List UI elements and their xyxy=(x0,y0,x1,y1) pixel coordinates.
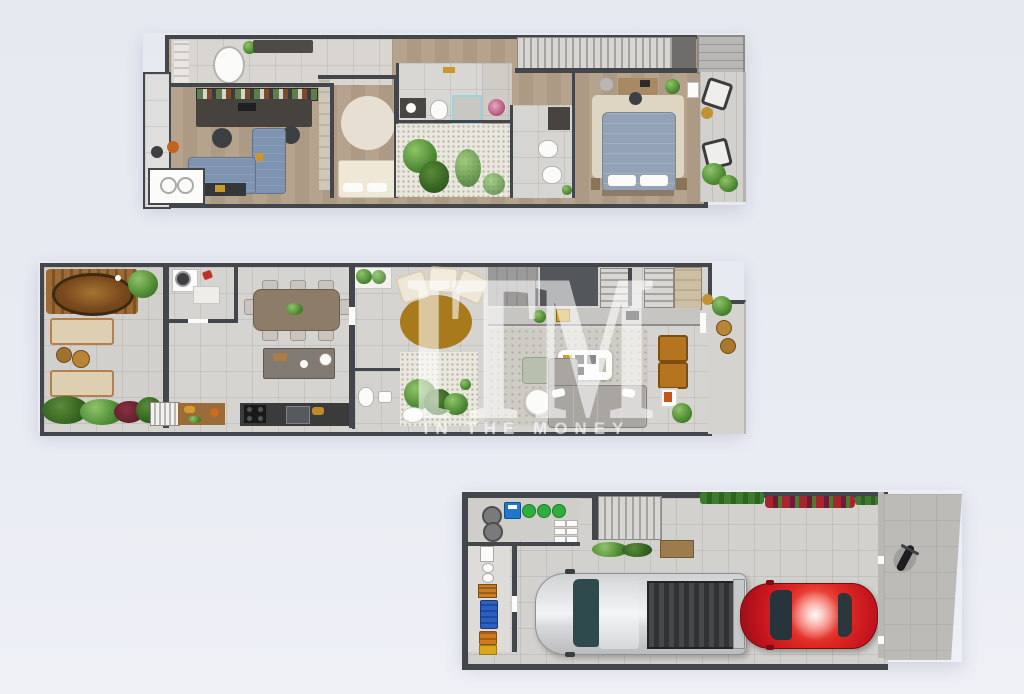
stair-closet xyxy=(674,267,702,310)
master-bench xyxy=(687,82,699,98)
porch-wood-stool xyxy=(716,320,732,336)
car-mirror xyxy=(766,645,774,650)
wall xyxy=(330,85,334,198)
main-floor-plan xyxy=(38,261,744,432)
stairs-flight xyxy=(644,268,674,308)
blue-cooler xyxy=(504,502,521,519)
powder-sink xyxy=(378,391,392,403)
car-rear-window xyxy=(838,593,852,637)
sectional-sofa-vertical xyxy=(252,128,286,194)
sofa-pillow xyxy=(255,153,263,161)
toilet xyxy=(358,387,374,407)
dryer-top xyxy=(177,177,194,194)
desk-laptop xyxy=(640,80,650,87)
laundry-tub xyxy=(482,563,494,573)
courtyard-plant xyxy=(444,393,468,415)
tv-console-decor xyxy=(215,185,225,192)
bed-pillow xyxy=(640,175,668,186)
bed-pillow xyxy=(367,183,387,192)
floor-plan-canvas: ITM IN THE MONEY xyxy=(0,0,1024,694)
top-hedge xyxy=(855,496,879,505)
door-post xyxy=(878,556,884,564)
stairs-flight xyxy=(600,268,630,308)
green-bin xyxy=(552,504,566,518)
laundry-washer xyxy=(175,271,191,287)
deck-side-table xyxy=(72,350,90,368)
car-roof-glare xyxy=(792,589,838,641)
flower-bed xyxy=(765,496,855,508)
pickup-truck xyxy=(535,573,745,653)
laundry-table xyxy=(193,286,220,304)
cooler-lid xyxy=(508,505,517,509)
utility-barrel xyxy=(483,522,503,542)
gold-pots xyxy=(312,407,324,415)
flower-pot-pink xyxy=(488,99,505,116)
courtyard-gold-rug xyxy=(400,295,472,349)
sun-lounger xyxy=(50,318,114,345)
garage-stairs xyxy=(598,496,662,540)
balcony-table xyxy=(701,107,713,119)
nightstand xyxy=(591,178,600,190)
stove xyxy=(244,405,266,423)
garden-plant xyxy=(419,161,449,193)
top-hedge xyxy=(700,492,764,504)
utility-sink xyxy=(480,546,494,562)
armchair-caramel xyxy=(658,335,688,362)
balcony-plant xyxy=(719,175,738,192)
island-board xyxy=(273,353,287,361)
toilet xyxy=(430,100,448,120)
console-art xyxy=(599,358,606,372)
planter-greens xyxy=(356,269,372,284)
garage-level-plan xyxy=(462,490,962,662)
garden-fern xyxy=(455,149,481,187)
bbq-bowls xyxy=(184,406,195,413)
truck-bed xyxy=(647,581,735,649)
bbq-grill xyxy=(150,402,180,426)
console-art xyxy=(587,355,596,364)
island-sink xyxy=(319,353,332,366)
deck-plant xyxy=(128,270,158,298)
island-stool xyxy=(300,360,308,368)
bbq-pot xyxy=(210,408,219,417)
bath-sink xyxy=(406,103,416,113)
master-stool xyxy=(600,78,613,91)
yellow-box xyxy=(479,645,497,655)
sun-lounger xyxy=(50,370,114,397)
laundry-door xyxy=(188,319,208,323)
porch-wood-stool xyxy=(720,338,736,354)
roof-box xyxy=(697,35,745,74)
laundry-tub xyxy=(482,573,494,583)
wall xyxy=(396,120,512,123)
living-plant xyxy=(672,403,692,423)
bedroom2-wardrobe xyxy=(319,77,330,190)
wall xyxy=(169,83,334,87)
truck-mirror xyxy=(565,569,575,574)
shelf-box xyxy=(566,520,578,527)
porch-plant xyxy=(712,296,732,316)
wall xyxy=(510,105,513,198)
bathtub xyxy=(213,46,245,84)
car-windshield xyxy=(770,590,792,640)
wall xyxy=(515,68,700,73)
bedroom2-bed xyxy=(338,160,396,198)
shelf-box xyxy=(554,520,566,527)
upper-stairs xyxy=(517,37,674,70)
stair-void-panel xyxy=(488,267,538,306)
planter-greens xyxy=(372,270,386,284)
wall xyxy=(234,267,238,322)
entry-door xyxy=(700,313,706,333)
bed-pillow xyxy=(608,175,636,186)
truck-roof xyxy=(599,577,639,649)
door-post xyxy=(878,636,884,644)
bed-headboard xyxy=(602,190,674,196)
dark-pouf xyxy=(151,146,163,158)
blue-crates xyxy=(480,600,498,629)
sofa-chaise xyxy=(548,358,578,387)
courtyard-pot xyxy=(460,379,471,390)
hot-tub xyxy=(52,273,134,316)
driveway xyxy=(884,494,962,660)
garden-planter-tub xyxy=(402,407,424,423)
red-car xyxy=(740,583,876,647)
stair-hedge xyxy=(622,543,652,557)
bed-pillow xyxy=(343,183,363,192)
wall xyxy=(396,63,399,123)
wall xyxy=(572,73,575,198)
desk-chair xyxy=(629,92,642,105)
master-plant xyxy=(665,79,680,94)
stairs-landing xyxy=(672,37,696,68)
deck-side-table xyxy=(56,347,72,363)
wood-shelf xyxy=(478,584,497,598)
table-centerpiece xyxy=(286,303,303,315)
stair-void xyxy=(540,267,598,306)
truck-windshield xyxy=(573,579,599,647)
bath2-plant xyxy=(562,185,572,195)
desk-monitor xyxy=(238,103,256,111)
hall-door xyxy=(349,307,355,325)
bath2-console xyxy=(548,107,570,130)
kitchen-sink xyxy=(286,406,310,424)
garage-door-edge xyxy=(878,492,884,658)
shelf-gold-box xyxy=(556,309,570,322)
truck-mirror xyxy=(565,652,575,657)
towels xyxy=(443,67,455,73)
orange-crate xyxy=(479,631,497,645)
shelf-box xyxy=(566,528,578,535)
washer-top xyxy=(160,177,177,194)
closet-vanity xyxy=(253,40,313,53)
closet-racks xyxy=(174,41,189,83)
bbq-greens xyxy=(188,416,201,423)
stair-rail xyxy=(628,268,632,306)
car-mirror xyxy=(766,580,774,585)
garden-shrub xyxy=(483,173,505,195)
armchair-caramel xyxy=(658,362,688,389)
green-bin xyxy=(522,504,536,518)
orange-pouf xyxy=(167,141,179,153)
shelf-plant xyxy=(533,310,546,323)
wall-tv xyxy=(626,311,639,320)
green-bin xyxy=(537,504,551,518)
bedroom2-round-rug xyxy=(341,96,395,150)
shelf-box xyxy=(554,528,566,535)
office-chair xyxy=(212,128,232,148)
hot-tub-step xyxy=(115,275,121,281)
garage-door-open xyxy=(512,596,517,612)
upper-floor-plan xyxy=(143,33,745,205)
doormat xyxy=(660,540,694,558)
bidet xyxy=(542,166,562,184)
nightstand xyxy=(676,178,687,190)
toilet xyxy=(538,140,558,158)
ottoman-sage xyxy=(522,357,550,384)
media-shelf xyxy=(488,308,700,326)
wall xyxy=(318,75,396,79)
art-orange xyxy=(664,392,672,402)
